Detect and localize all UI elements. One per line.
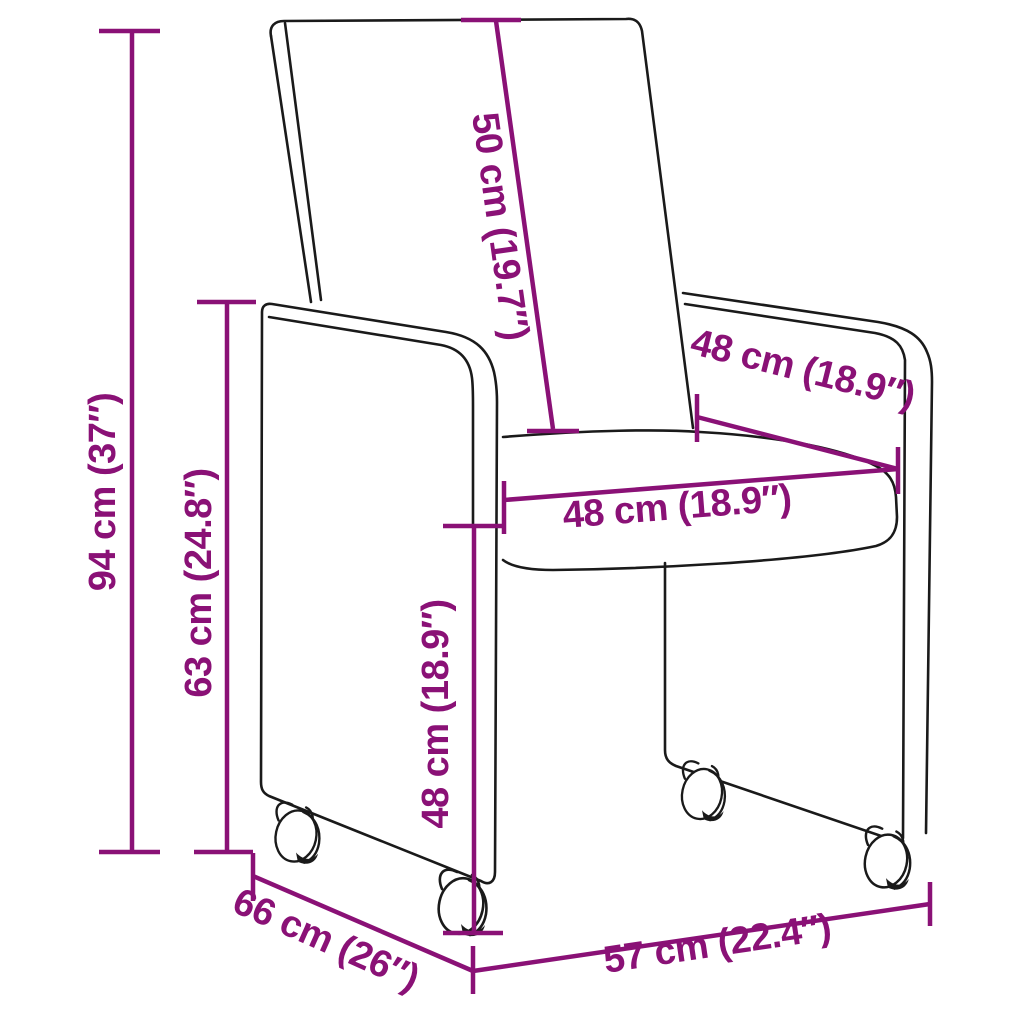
dimension-overall-width: 57 cm (22.4″) bbox=[473, 882, 930, 982]
dimension-diagram: 94 cm (37″) 63 cm (24.8″) 50 cm (19.7″) … bbox=[0, 0, 1024, 1024]
overall-depth-label: 66 cm (26″) bbox=[227, 880, 426, 999]
armrest-height-label: 63 cm (24.8″) bbox=[178, 468, 220, 697]
armchair-dimension-drawing: 94 cm (37″) 63 cm (24.8″) 50 cm (19.7″) … bbox=[0, 0, 1024, 1024]
dimension-overall-depth: 66 cm (26″) bbox=[227, 853, 473, 1000]
left-armrest-outer bbox=[261, 304, 497, 883]
chair-outline bbox=[261, 19, 932, 938]
caster-rear-right bbox=[677, 761, 726, 822]
dimension-annotations: 94 cm (37″) 63 cm (24.8″) 50 cm (19.7″) … bbox=[82, 20, 930, 1000]
dimension-armrest-height: 63 cm (24.8″) bbox=[178, 302, 256, 852]
seat-depth-label: 48 cm (18.9″) bbox=[561, 477, 793, 537]
seat-height-label: 48 cm (18.9″) bbox=[415, 599, 457, 828]
overall-height-label: 94 cm (37″) bbox=[82, 393, 124, 592]
dimension-seat-depth: 48 cm (18.9″) bbox=[504, 469, 898, 537]
dimension-overall-height: 94 cm (37″) bbox=[82, 31, 160, 852]
overall-width-label: 57 cm (22.4″) bbox=[601, 906, 834, 981]
